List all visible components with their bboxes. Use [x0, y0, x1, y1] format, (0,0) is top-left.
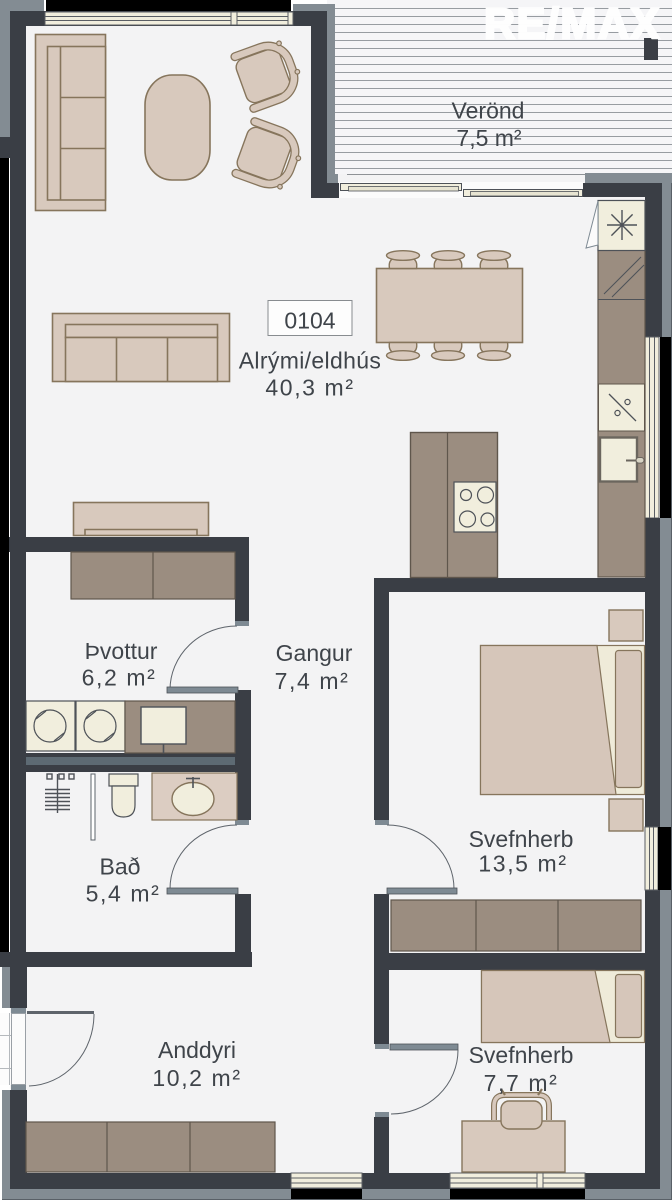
svg-text:7,5 m²: 7,5 m²	[456, 125, 522, 151]
svg-text:6,2 m²: 6,2 m²	[82, 665, 157, 691]
svg-text:Alrými/eldhús: Alrými/eldhús	[239, 348, 382, 374]
svg-text:Verönd: Verönd	[452, 98, 525, 124]
svg-text:7,7 m²: 7,7 m²	[484, 1070, 559, 1096]
svg-text:Anddyri: Anddyri	[158, 1037, 236, 1063]
svg-text:Bað: Bað	[100, 854, 141, 880]
svg-text:5,4 m²: 5,4 m²	[86, 881, 161, 907]
svg-text:7,4 m²: 7,4 m²	[275, 668, 350, 694]
svg-text:RE/MAX: RE/MAX	[484, 0, 661, 48]
svg-text:Gangur: Gangur	[276, 640, 353, 666]
svg-text:0104: 0104	[284, 308, 335, 334]
svg-text:40,3 m²: 40,3 m²	[265, 375, 354, 401]
svg-text:Svefnherb: Svefnherb	[469, 826, 574, 852]
svg-text:13,5 m²: 13,5 m²	[478, 851, 567, 877]
svg-text:Þvottur: Þvottur	[85, 638, 158, 664]
svg-text:10,2 m²: 10,2 m²	[152, 1065, 241, 1091]
svg-text:Svefnherb: Svefnherb	[469, 1042, 574, 1068]
